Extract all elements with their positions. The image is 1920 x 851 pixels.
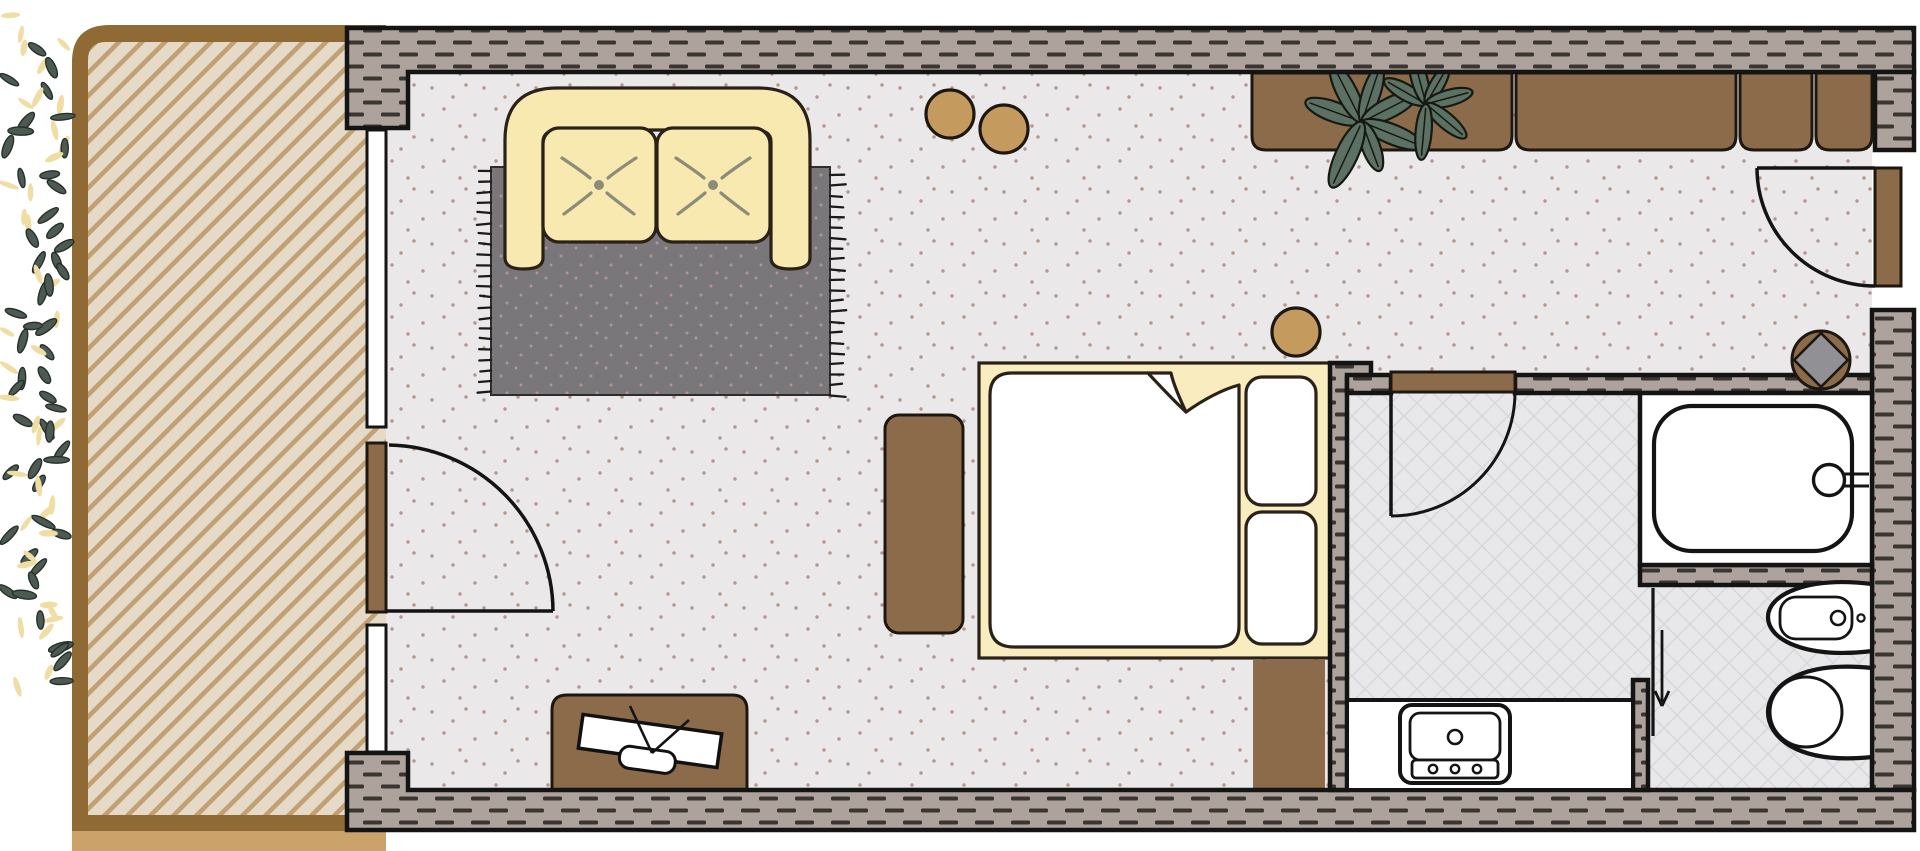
bed-pillow: [1246, 377, 1316, 505]
yellow-leaf: [17, 617, 25, 639]
dark-leaf: [44, 457, 70, 464]
dark-leaf: [8, 127, 34, 136]
dark-leaf: [36, 611, 44, 630]
dark-leaf: [0, 134, 16, 159]
bedside-cabinet: [1253, 660, 1325, 790]
right-wall-lower: [1872, 310, 1914, 790]
bathroom-door-leaf: [1391, 372, 1515, 392]
shrub-leaves: [0, 12, 76, 698]
dark-leaf: [36, 205, 60, 225]
wardrobe-section: [1740, 73, 1812, 150]
bidet: [1768, 582, 1872, 653]
shower-stub-wall: [1633, 680, 1648, 790]
window: [367, 130, 386, 427]
yellow-leaf: [17, 96, 35, 110]
yellow-leaf: [49, 120, 59, 141]
dark-leaf: [0, 72, 20, 88]
floor-plan: [0, 0, 1920, 851]
pouf-stool: [926, 90, 974, 138]
dark-leaf: [4, 306, 27, 320]
pouf-stool: [980, 105, 1028, 153]
bidet-button: [1857, 614, 1864, 621]
dark-leaf: [50, 112, 75, 121]
yellow-leaf: [56, 36, 72, 52]
sink-knob: [1451, 765, 1459, 773]
bathtub: [1654, 406, 1869, 551]
dark-leaf: [16, 328, 30, 354]
wardrobe-section: [1816, 73, 1872, 150]
dark-leaf: [12, 412, 34, 429]
balcony: [72, 25, 386, 851]
wardrobe-section: [1516, 73, 1736, 150]
yellow-leaf: [19, 515, 34, 533]
dark-leaf: [0, 524, 20, 546]
yellow-leaf: [44, 150, 65, 165]
decor-diamond: [1792, 331, 1850, 389]
yellow-leaf: [56, 94, 66, 115]
bidet-drain: [1831, 611, 1845, 625]
dark-leaf: [27, 40, 48, 58]
sink-drain: [1448, 730, 1462, 744]
yellow-leaf: [30, 86, 46, 108]
dark-leaf: [43, 56, 60, 79]
toilet-bowl: [1770, 677, 1842, 747]
dark-leaf: [26, 571, 40, 591]
yellow-leaf: [0, 360, 20, 376]
dark-leaf: [44, 221, 65, 241]
double-bed: [979, 363, 1330, 658]
yellow-leaf: [0, 179, 20, 191]
vanity: [1347, 700, 1633, 790]
dark-leaf: [17, 168, 27, 188]
dark-leaf: [45, 178, 67, 196]
yellow-leaf: [12, 676, 24, 697]
yellow-leaf: [0, 326, 16, 339]
balcony-deck: [88, 42, 386, 815]
yellow-leaf: [43, 663, 55, 681]
dark-leaf: [36, 365, 53, 386]
dark-leaf: [45, 403, 67, 414]
dark-leaf: [39, 170, 60, 180]
bathroom-north-wall: [1347, 375, 1391, 393]
dark-leaf: [24, 227, 41, 249]
bed-duvet: [990, 373, 1239, 647]
right-wall-upper: [1875, 72, 1914, 150]
dark-leaf: [38, 389, 58, 405]
tub-faucet: [1814, 465, 1845, 496]
bed-pillow: [1246, 512, 1316, 644]
sink-knob: [1429, 765, 1437, 773]
sink-knob: [1473, 765, 1481, 773]
balcony-door-leaf: [367, 443, 386, 612]
floor-plan-drawing: [0, 0, 1920, 851]
bed-bench: [885, 415, 963, 633]
yellow-leaf: [28, 183, 34, 201]
yellow-leaf: [1, 12, 20, 19]
exterior-ground: [72, 831, 386, 851]
bedside-stool: [1272, 308, 1320, 356]
window: [367, 625, 386, 752]
dark-leaf: [50, 677, 73, 685]
entrance-door-leaf: [1875, 168, 1901, 286]
